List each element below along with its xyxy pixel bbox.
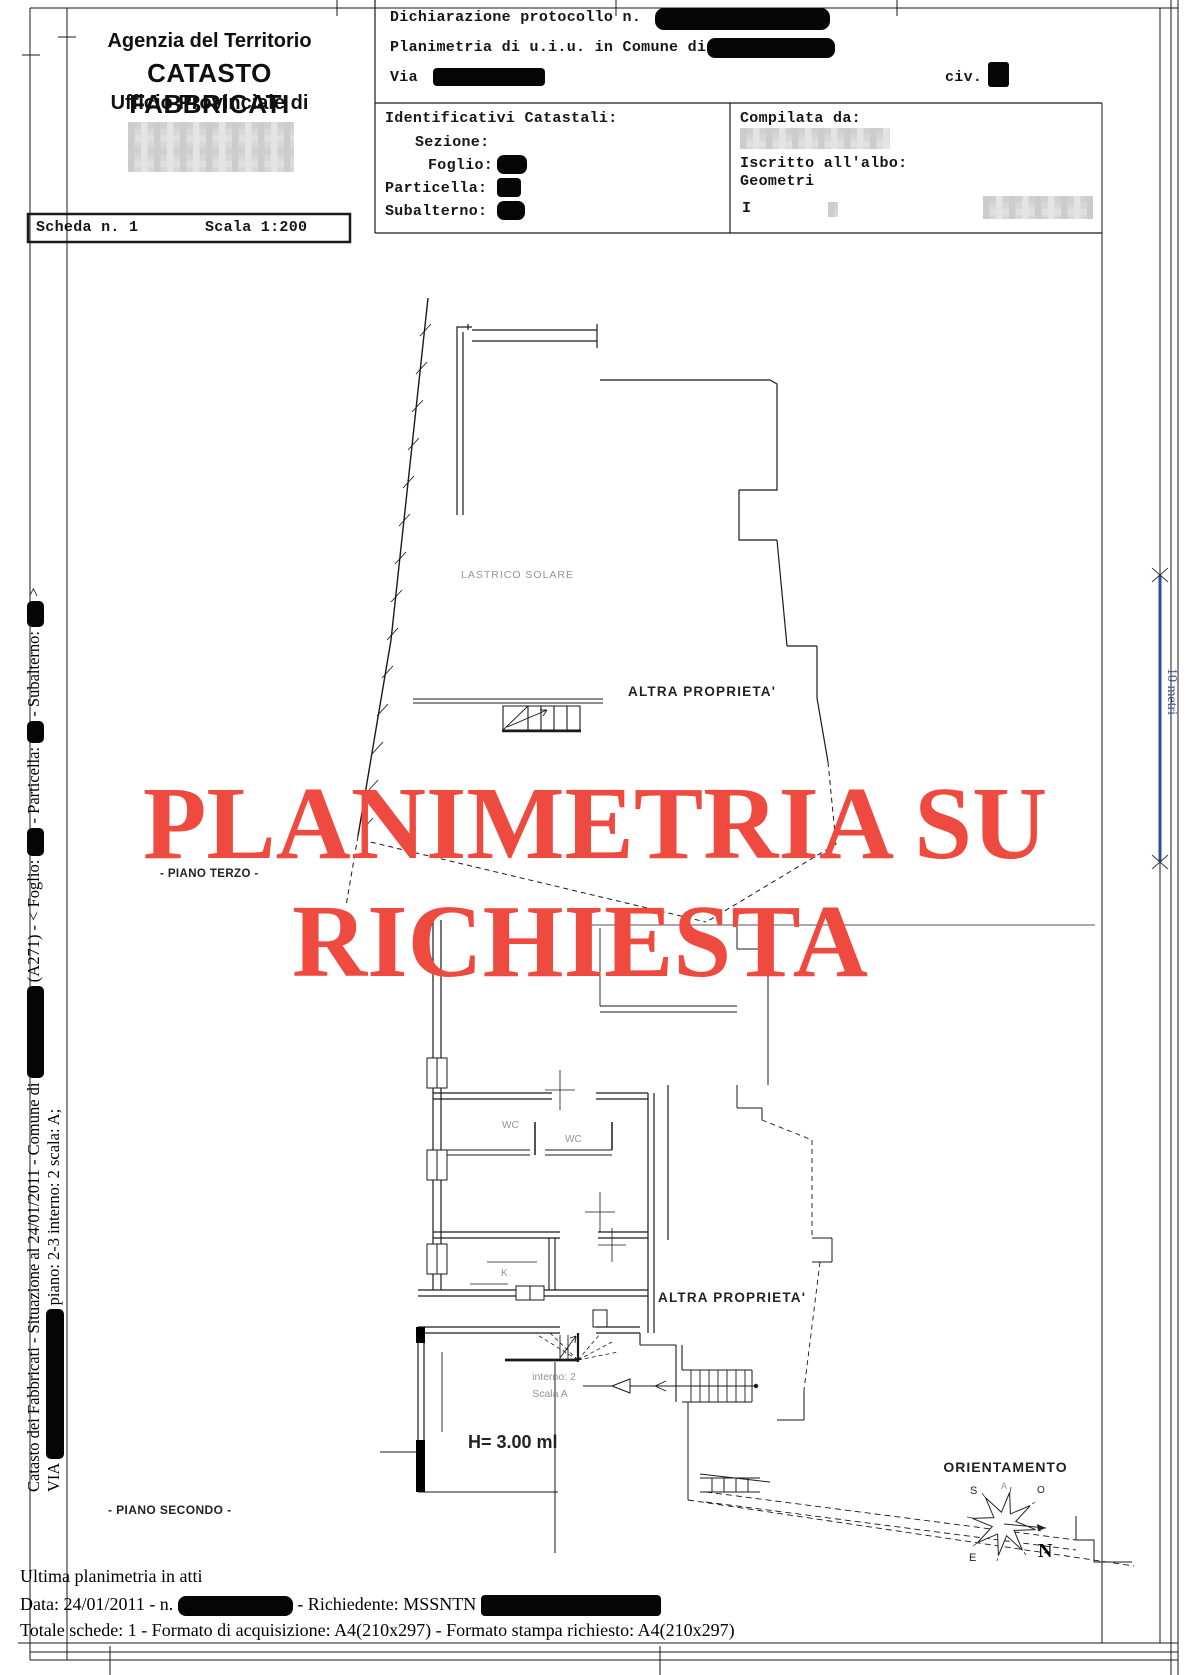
redaction-sidebar-street [46,1309,64,1459]
scale-bar-label: 10 metri [1163,668,1179,715]
compiled-by-label: Compilata da: [740,110,861,127]
planimetria-comune-label: Planimetria di u.i.u. in Comune di [390,39,706,56]
redaction-civic-number [988,62,1009,87]
sidebar-seg5: > [24,587,43,596]
sidebar-address-line: VIA piano: 2-3 interno: 2 scala: A; [44,1109,64,1492]
compass-rose [967,1487,1046,1561]
watermark-line-2: RICHIESTA [130,890,1030,994]
second-floor-label: - PIANO SECONDO - [108,1503,231,1517]
scala-a-label: Scala A [518,1388,582,1400]
sidebar-via-label: VIA [44,1464,63,1492]
redaction-protocol-number [655,8,830,30]
compass-north-label: N [1038,1540,1052,1563]
redaction-province-name [128,122,294,172]
piano-secondo-main-lines [418,1058,668,1333]
redaction-street-name [433,68,545,86]
wc-label-1: WC [502,1120,519,1131]
redaction-foglio-value [497,155,527,174]
street-label: Via [390,69,418,86]
registry-name: Geometri [740,173,814,190]
redaction-particella-value [497,178,521,197]
foglio-label: Foglio: [428,157,493,174]
redaction-requester-name [481,1595,661,1616]
sidebar-unit-info: piano: 2-3 interno: 2 scala: A; [44,1109,63,1306]
footer-date-prefix: Data: 24/01/2011 - n. [20,1594,173,1614]
compass-east-label: E [969,1552,976,1564]
redaction-compiler-name [740,128,890,149]
interno-label: interno: 2 [518,1371,590,1383]
agency-name: Agenzia del Territorio [67,30,352,53]
cadastral-ids-heading: Identificativi Catastali: [385,110,618,127]
sidebar-seg2: (A271) - < Foglio: [24,860,43,983]
redaction-signature-block [983,196,1093,219]
redaction-sidebar-subalterno [27,601,44,627]
sidebar-seg3: - Particella: [24,747,43,824]
scale-bar [1152,568,1168,869]
other-property-label-2: ALTRA PROPRIETA' [658,1290,828,1305]
subalterno-label: Subalterno: [385,203,487,220]
footer-totale-line: Totale schede: 1 - Formato di acquisizio… [20,1620,735,1641]
compass-a-mark: A [1001,1481,1007,1491]
watermark-line-1: PLANIMETRIA SU [140,772,1050,876]
redaction-comune-name [707,38,835,58]
redaction-sidebar-foglio [27,828,44,856]
redaction-sidebar-comune [27,986,44,1078]
redaction-request-number [178,1596,293,1616]
compass-west-label: O [1037,1485,1045,1496]
ultima-planimetria-note: Ultima planimetria in atti [20,1566,202,1587]
cadastral-document-page: Agenzia del Territorio CATASTO FABBRICAT… [0,0,1188,1675]
sheet-scale: Scala 1:200 [205,219,307,236]
sloped-roof-lines [688,1402,1134,1566]
sheet-number: Scheda n. 1 [36,219,138,236]
kitchen-label: K [501,1268,508,1279]
sidebar-seg4: - Subalterno: [24,631,43,717]
sezione-label: Sezione: [415,134,489,151]
provincial-office-label: Ufficio Provinciale di [67,92,352,115]
declaration-protocol-label: Dichiarazione protocollo n. [390,9,641,26]
footer-data-line: Data: 24/01/2011 - n. - Richiedente: MSS… [20,1594,661,1616]
wc-label-2: WC [565,1134,582,1145]
registered-label: Iscritto all'albo: [740,155,907,172]
redaction-subalterno-value [497,201,525,220]
civic-number-label: civ. [945,69,982,86]
orientation-heading: ORIENTAMENTO [928,1459,1083,1475]
footer-richiedente: - Richiedente: MSSNTN [297,1594,476,1614]
compass-south-label: S [970,1485,977,1497]
ceiling-height-label: H= 3.00 ml [468,1432,558,1453]
particella-label: Particella: [385,180,487,197]
lastrico-solare-label: LASTRICO SOLARE [455,569,580,581]
signature-initial: I [742,200,751,217]
sidebar-reference-line: Catasto dei Fabbricati - Situazione al 2… [24,587,44,1492]
redaction-sidebar-particella [27,721,44,743]
redaction-signature-smudge [828,202,838,217]
sidebar-seg1: Catasto dei Fabbricati - Situazione al 2… [24,1082,43,1492]
other-property-label-1: ALTRA PROPRIETA' [628,684,798,699]
